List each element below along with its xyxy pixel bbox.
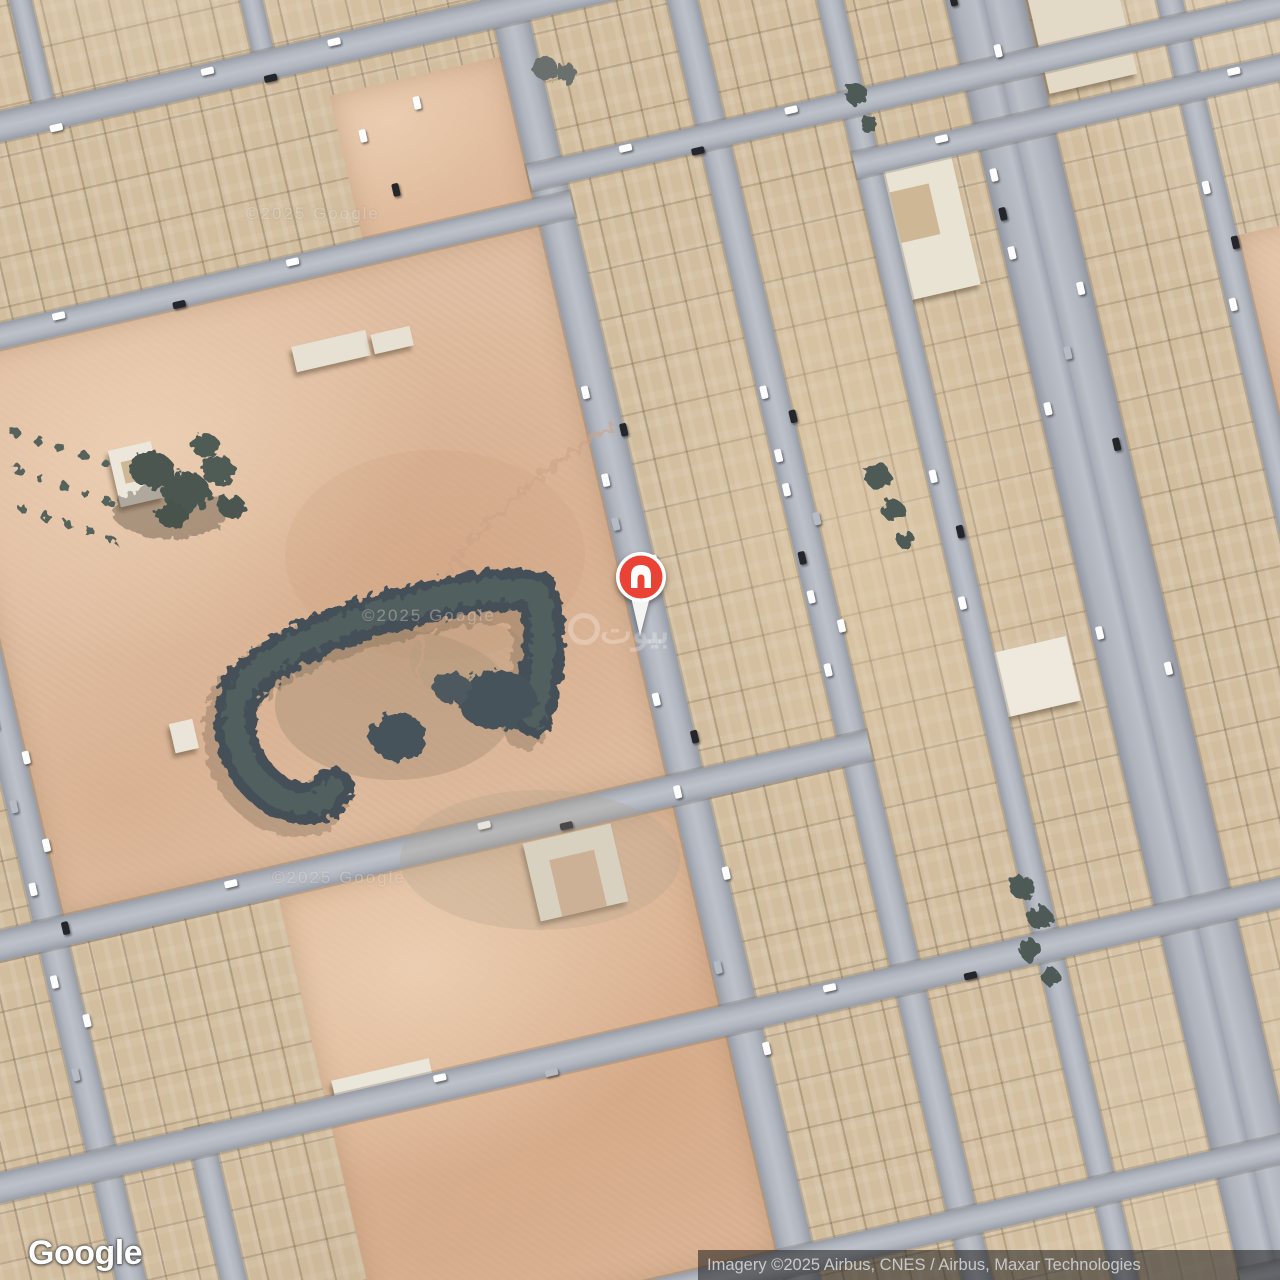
map-imagery-layer bbox=[0, 0, 1280, 1280]
google-logo[interactable]: Google bbox=[28, 1234, 142, 1273]
imagery-attribution: Imagery ©2025 Airbus, CNES / Airbus, Max… bbox=[698, 1250, 1280, 1280]
satellite-map-canvas[interactable]: ©2025 Google ©2025 Google ©2025 Google ب… bbox=[0, 0, 1280, 1280]
